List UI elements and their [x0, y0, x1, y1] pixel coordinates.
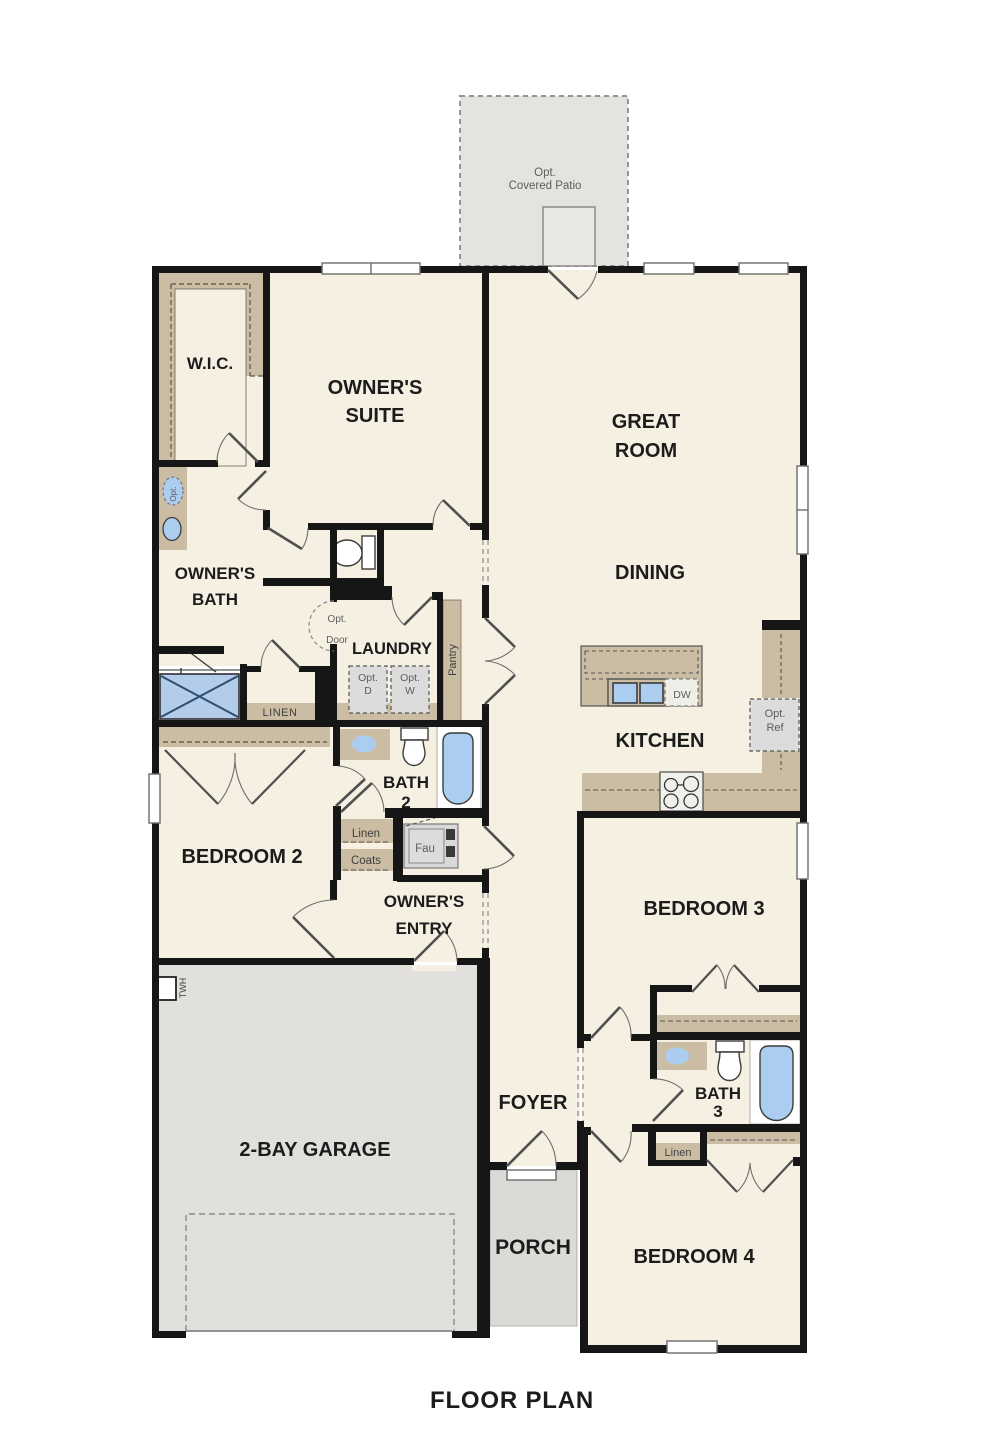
svg-text:Opt.: Opt. — [534, 167, 556, 179]
svg-text:DW: DW — [673, 689, 691, 701]
svg-text:LAUNDRY: LAUNDRY — [352, 640, 432, 658]
svg-text:Covered Patio: Covered Patio — [509, 180, 582, 192]
svg-text:PORCH: PORCH — [495, 1236, 571, 1259]
svg-text:ROOM: ROOM — [615, 440, 677, 462]
svg-text:Opt.: Opt. — [765, 708, 786, 720]
svg-text:BATH: BATH — [192, 590, 238, 609]
svg-text:2: 2 — [401, 793, 410, 812]
svg-text:BATH: BATH — [383, 773, 429, 792]
svg-text:OWNER'S: OWNER'S — [384, 892, 465, 911]
svg-text:Opt.: Opt. — [358, 672, 378, 684]
svg-text:DINING: DINING — [615, 562, 685, 584]
svg-text:OWNER'S: OWNER'S — [175, 564, 256, 583]
svg-text:Opt.: Opt. — [400, 672, 420, 684]
svg-text:GREAT: GREAT — [612, 411, 681, 433]
svg-text:OWNER'S: OWNER'S — [328, 377, 423, 399]
svg-text:Coats: Coats — [351, 855, 381, 867]
svg-text:FOYER: FOYER — [499, 1092, 568, 1114]
svg-text:LINEN: LINEN — [263, 707, 298, 719]
svg-text:W: W — [405, 685, 415, 697]
svg-text:Opt.: Opt. — [169, 486, 178, 501]
svg-text:2-BAY GARAGE: 2-BAY GARAGE — [239, 1139, 390, 1161]
svg-text:Ref: Ref — [766, 722, 784, 734]
svg-text:BEDROOM 4: BEDROOM 4 — [633, 1246, 755, 1268]
svg-text:Fau: Fau — [415, 843, 435, 855]
svg-text:TWH: TWH — [178, 978, 188, 999]
svg-text:BATH: BATH — [695, 1084, 741, 1103]
svg-text:3: 3 — [713, 1102, 722, 1121]
svg-text:BEDROOM 2: BEDROOM 2 — [181, 846, 302, 868]
svg-text:Pantry: Pantry — [447, 644, 459, 676]
svg-text:SUITE: SUITE — [346, 405, 405, 427]
svg-text:ENTRY: ENTRY — [396, 919, 454, 938]
svg-text:FLOOR PLAN: FLOOR PLAN — [430, 1387, 594, 1414]
svg-text:KITCHEN: KITCHEN — [616, 730, 705, 752]
svg-text:W.I.C.: W.I.C. — [187, 354, 233, 373]
svg-text:Linen: Linen — [352, 828, 380, 840]
svg-text:Door: Door — [326, 635, 348, 646]
svg-text:D: D — [364, 685, 372, 697]
svg-text:Linen: Linen — [665, 1147, 692, 1159]
svg-text:BEDROOM 3: BEDROOM 3 — [643, 898, 764, 920]
svg-text:Opt.: Opt. — [328, 614, 347, 625]
